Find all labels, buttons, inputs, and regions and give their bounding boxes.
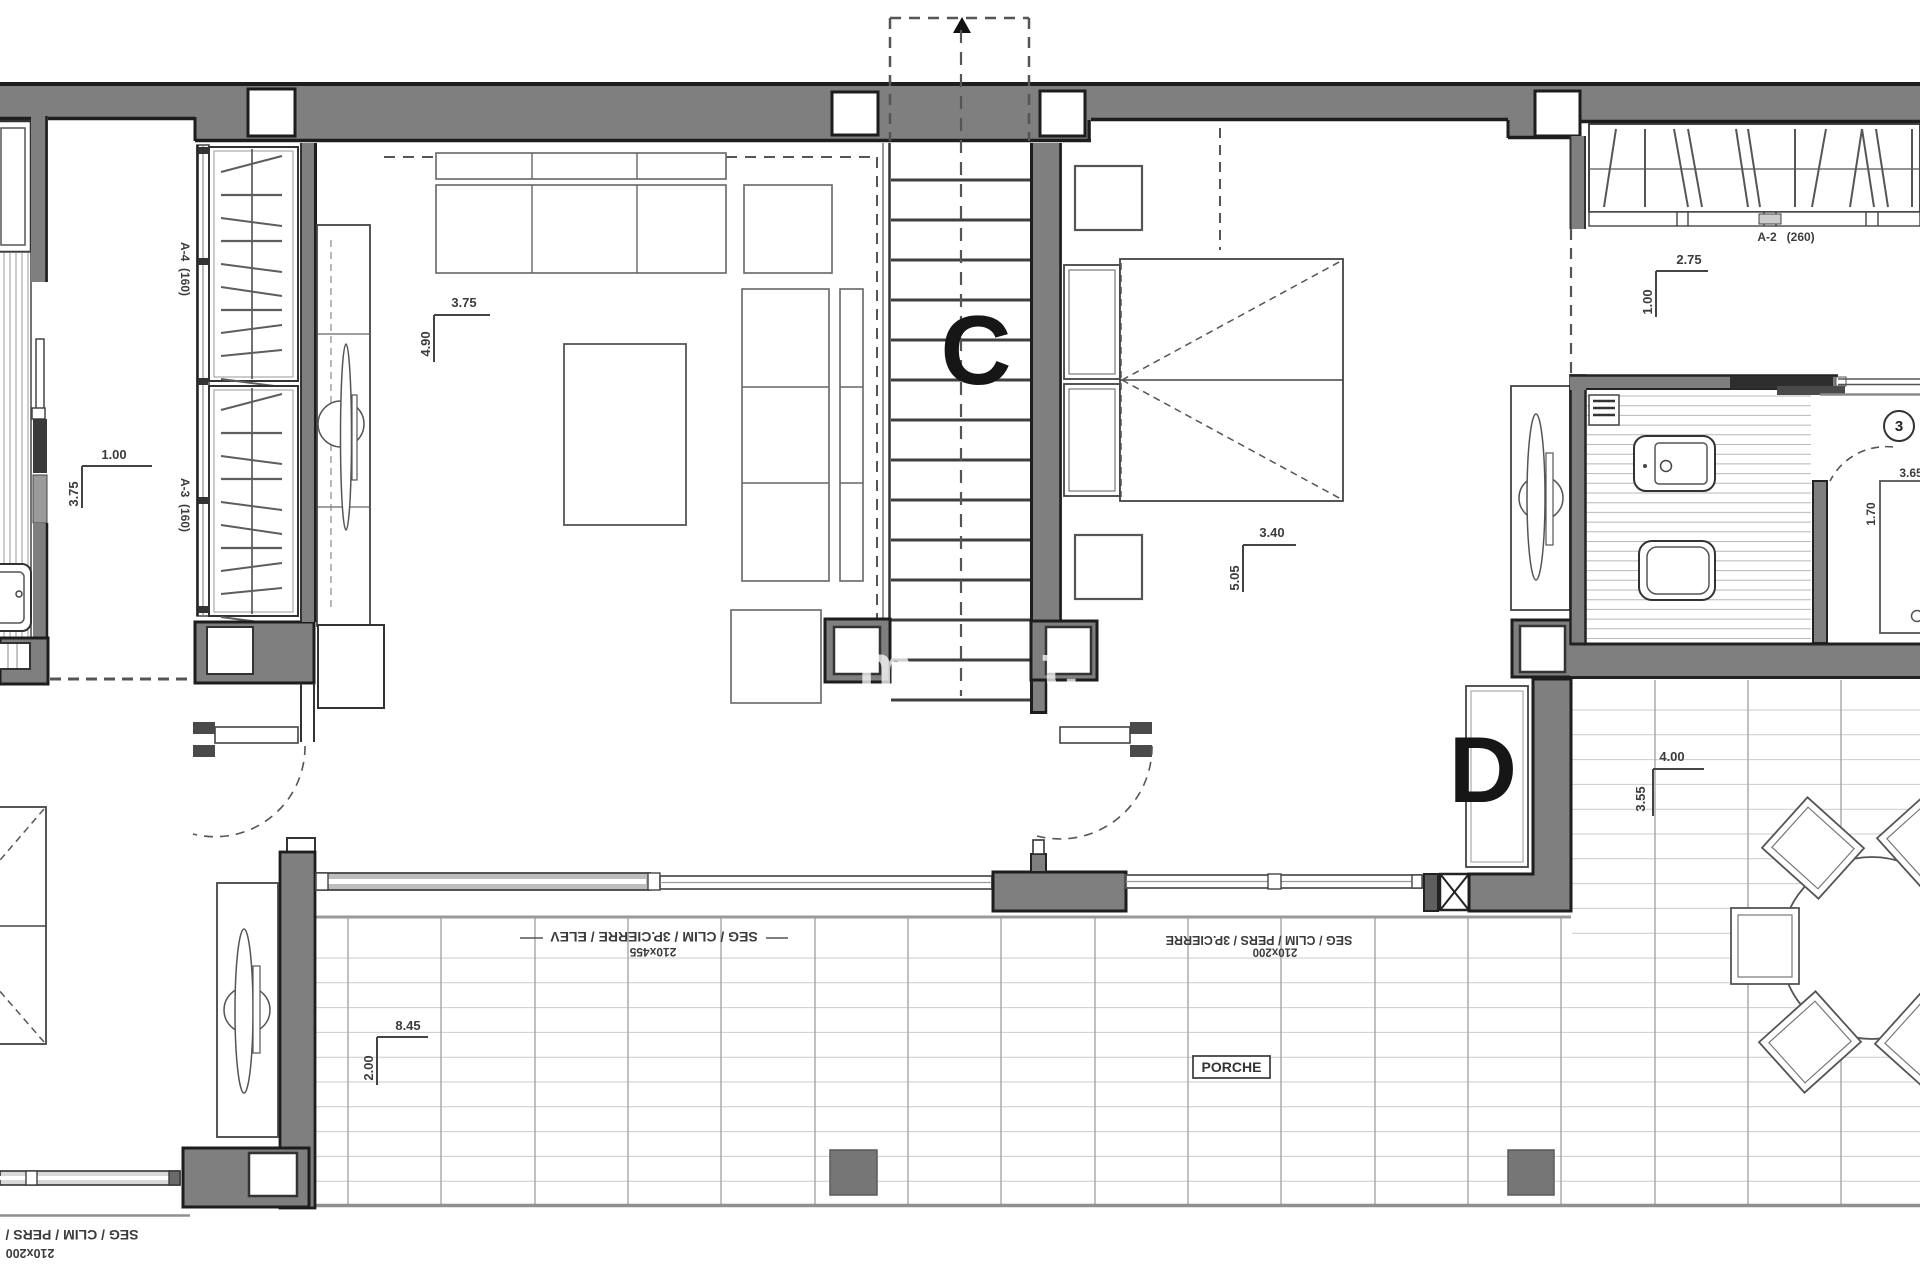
svg-text:PORCHE: PORCHE (1202, 1059, 1262, 1075)
svg-text:5.05: 5.05 (1227, 565, 1242, 590)
svg-text:A-3 (160): A-3 (160) (178, 478, 192, 532)
svg-text:2.00: 2.00 (361, 1055, 376, 1080)
svg-text:3.40: 3.40 (1259, 525, 1284, 540)
svg-text:1.00: 1.00 (101, 447, 126, 462)
svg-text:t.: t. (1042, 633, 1080, 702)
svg-text:3.75: 3.75 (451, 295, 476, 310)
svg-text:C: C (941, 295, 1012, 405)
svg-text:3.55: 3.55 (1633, 786, 1648, 811)
svg-text:3.75: 3.75 (66, 481, 81, 506)
svg-text:A-4 (160): A-4 (160) (178, 242, 192, 296)
svg-text:210x455: 210x455 (629, 945, 676, 959)
svg-text:210x200: 210x200 (1253, 946, 1298, 958)
svg-text:D: D (1449, 717, 1517, 822)
svg-text:210x200: 210x200 (6, 1246, 55, 1260)
svg-text:SEG / CLIM / 3P.CIERRE / ELEV: SEG / CLIM / 3P.CIERRE / ELEV (550, 929, 758, 945)
svg-text:A-2 (260): A-2 (260) (1757, 230, 1814, 244)
svg-text:4.90: 4.90 (418, 331, 433, 356)
svg-text:3.65: 3.65 (1899, 466, 1920, 480)
svg-text:3: 3 (1895, 418, 1903, 435)
svg-text:SEG / CLIM / PERS /: SEG / CLIM / PERS / (5, 1227, 138, 1243)
svg-text:1.00: 1.00 (1640, 289, 1655, 314)
svg-text:SEG / CLIM / PERS / 3P.CIERRE: SEG / CLIM / PERS / 3P.CIERRE (1166, 933, 1353, 947)
svg-text:1.70: 1.70 (1864, 502, 1878, 526)
svg-text:m: m (858, 633, 913, 702)
svg-text:8.45: 8.45 (395, 1018, 420, 1033)
svg-text:4.00: 4.00 (1659, 749, 1684, 764)
svg-text:2.75: 2.75 (1676, 252, 1701, 267)
